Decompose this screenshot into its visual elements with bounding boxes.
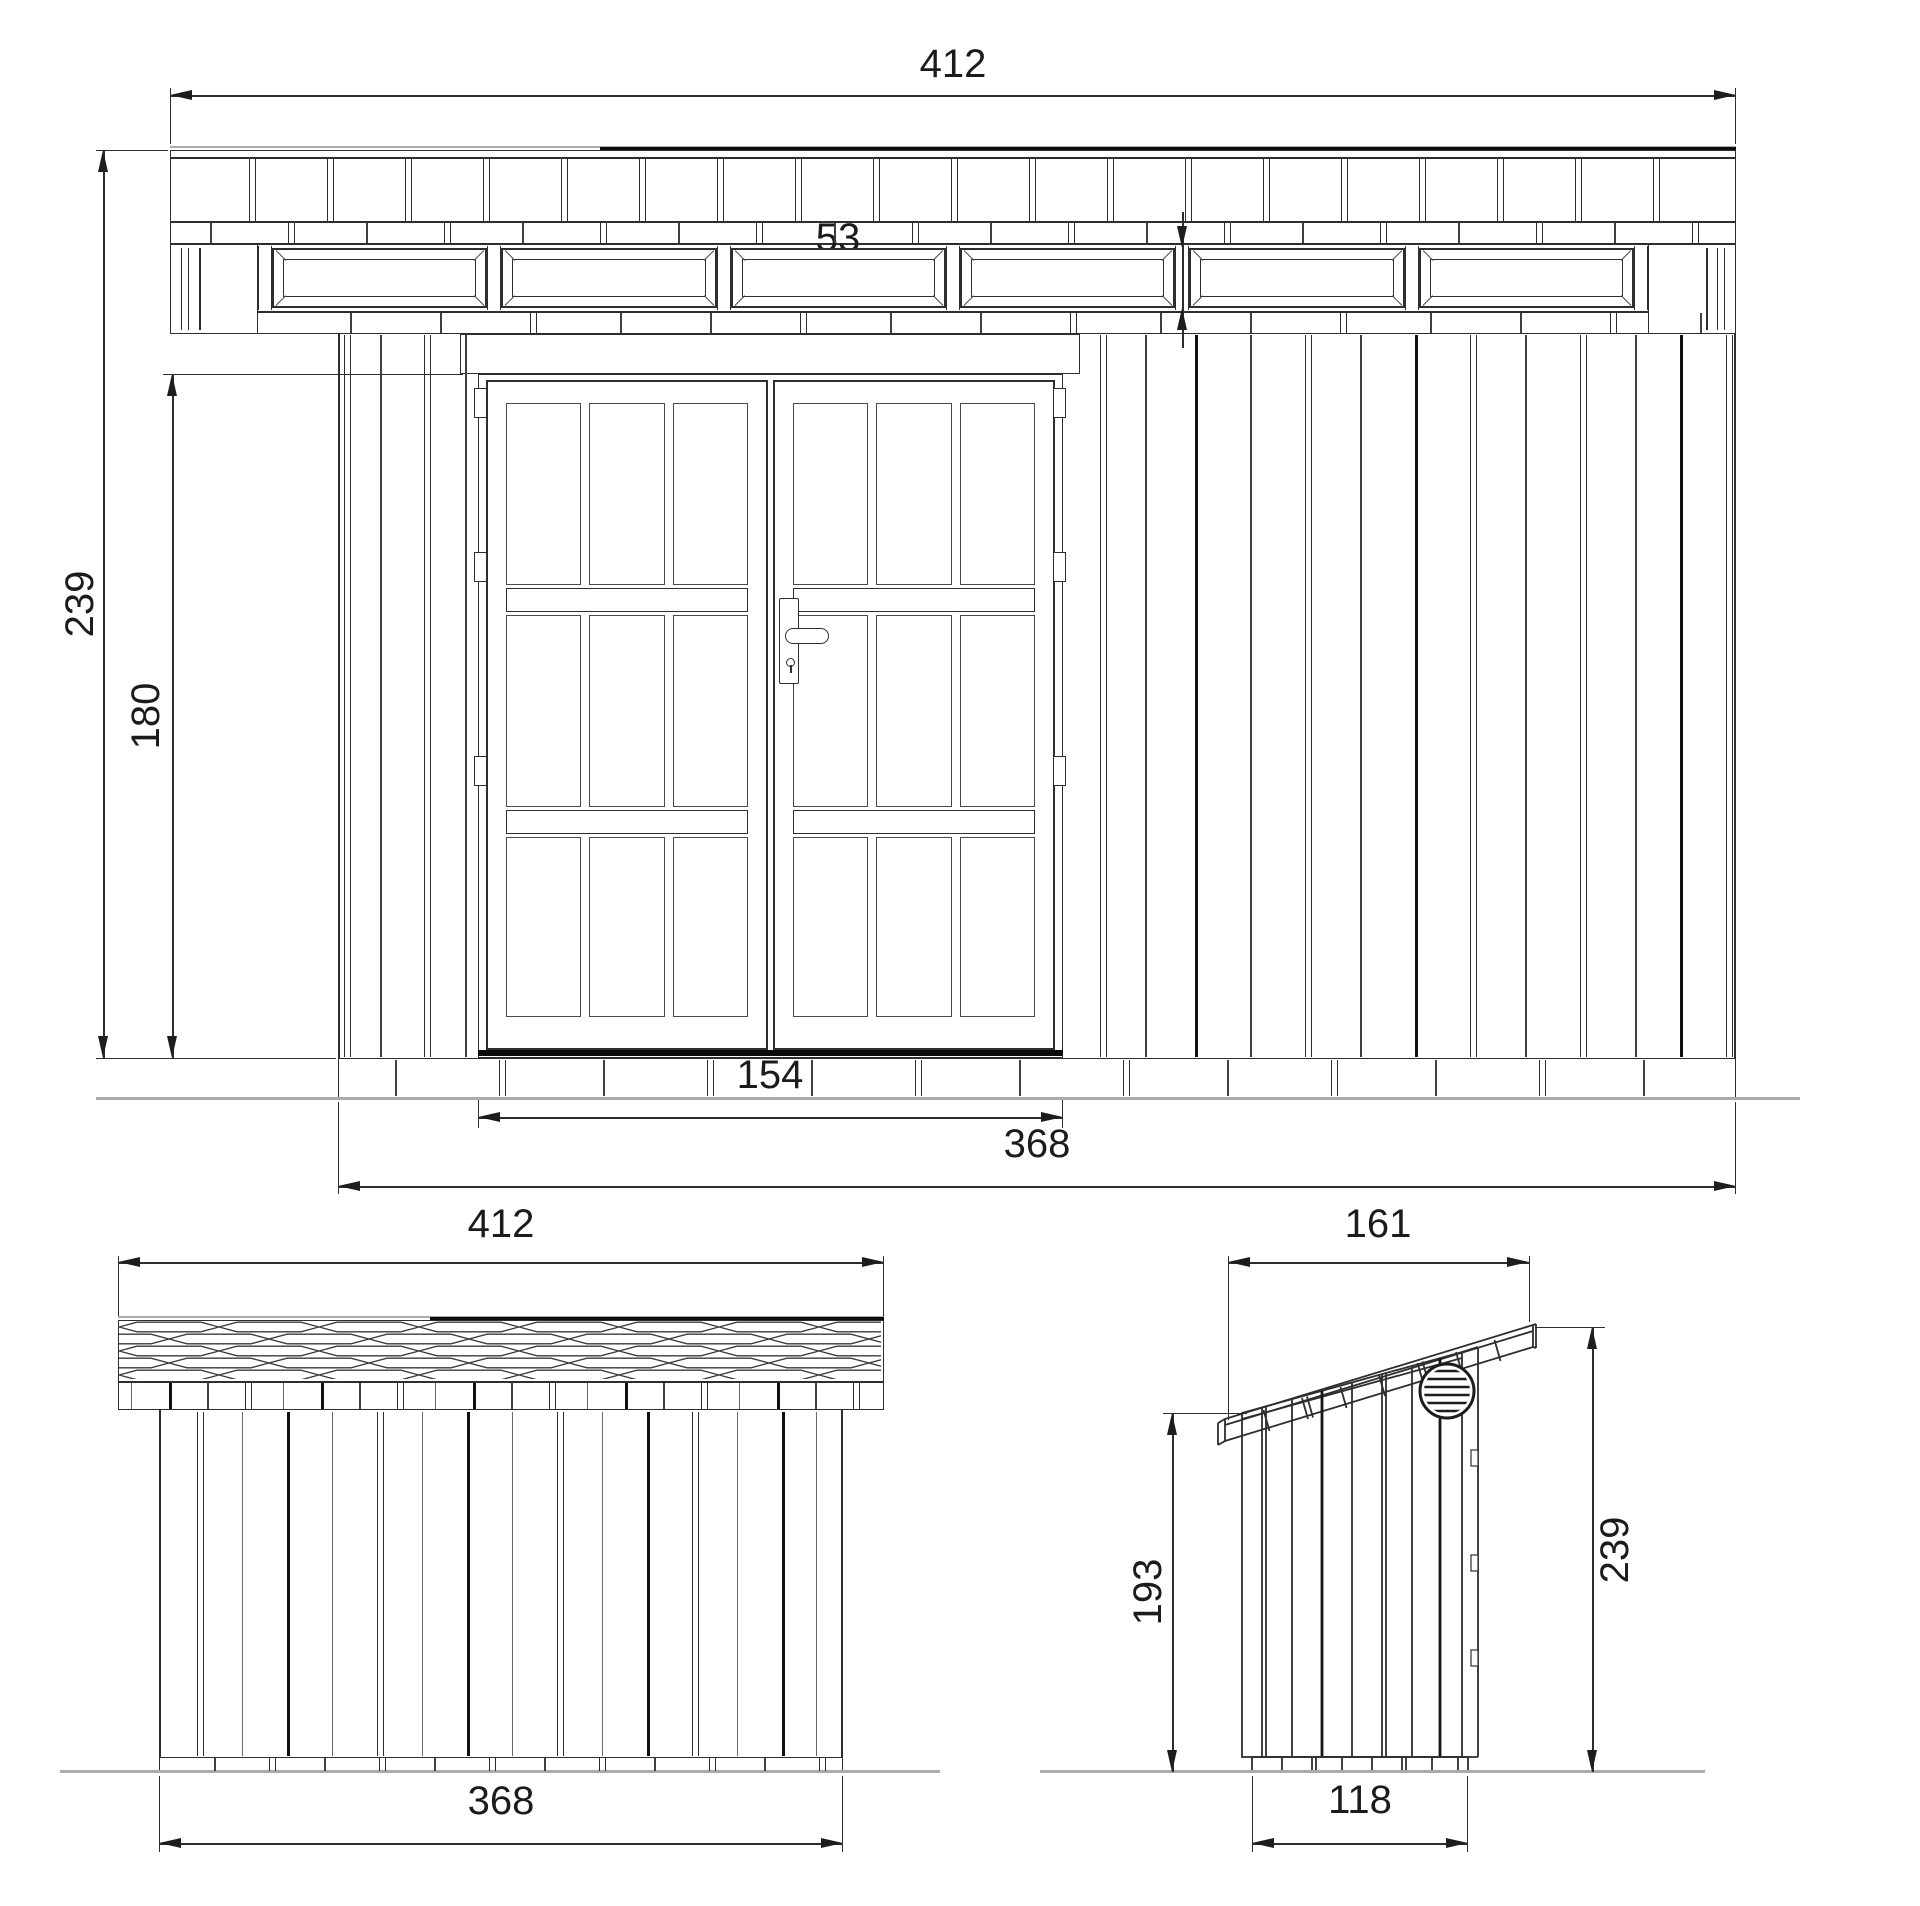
wall-plank-seam <box>1145 335 1147 1057</box>
foundation-seam <box>395 1060 397 1096</box>
roof-trim-seam <box>990 223 992 243</box>
back-wall-plank-seam <box>287 1412 290 1756</box>
lintel-seam <box>1610 313 1617 333</box>
arrow-left-icon <box>170 90 192 100</box>
back-wall-plank-seam <box>422 1412 423 1756</box>
ground-line-front <box>96 1097 1800 1100</box>
hinge <box>474 552 487 582</box>
roof-trim-seam <box>834 223 836 243</box>
roof-trim-band <box>170 222 1736 244</box>
back-wall-plank-seam <box>512 1412 513 1756</box>
foundation-seam <box>1331 1060 1338 1096</box>
ext-line <box>842 1776 843 1852</box>
back-fascia-seam <box>131 1383 132 1409</box>
back-fascia-seam <box>625 1383 628 1409</box>
transom-mullion <box>1405 246 1419 310</box>
transom-mullion <box>487 246 501 310</box>
door-panel <box>960 615 1035 807</box>
dim-front-total-height-line <box>103 150 105 1058</box>
door-rail <box>793 588 1035 612</box>
back-wall-plank-seam <box>602 1412 603 1756</box>
foundation-seam <box>1435 1060 1437 1096</box>
door-panel <box>589 403 664 585</box>
arrow-down-icon <box>98 1036 108 1058</box>
wall-plank-seam <box>1525 335 1527 1057</box>
back-fascia-seam <box>815 1383 817 1409</box>
ext-line <box>1735 1102 1736 1194</box>
transom-mullion <box>1634 246 1648 310</box>
door-panel <box>589 615 664 807</box>
arrow-up-icon <box>1167 1413 1177 1435</box>
back-wall-plank-seam <box>647 1412 650 1756</box>
ext-line <box>163 374 463 375</box>
wall-plank-seam <box>1726 335 1733 1057</box>
back-wall-plank-seam <box>467 1412 470 1756</box>
roof-slat-seam <box>873 159 880 221</box>
back-fascia-seam <box>169 1383 172 1409</box>
ground-line-back <box>60 1770 940 1773</box>
lintel-seam <box>530 313 537 333</box>
dim-door-width-label: 154 <box>737 1055 804 1095</box>
wall-plank-seam <box>1360 335 1362 1057</box>
lintel-seam <box>980 313 982 333</box>
foundation-seam <box>603 1060 605 1096</box>
arrow-right-icon <box>1714 1181 1736 1191</box>
back-foundation-seam <box>324 1758 326 1771</box>
door-panel <box>960 403 1035 585</box>
wall-plank-seam <box>1250 335 1252 1057</box>
back-fascia-seam <box>321 1383 324 1409</box>
roof-trim-seam <box>1068 223 1075 243</box>
door-panel <box>876 403 951 585</box>
roof-slat-seam <box>405 159 412 221</box>
back-wall-plank-seam <box>782 1412 785 1756</box>
wall-plank-seam <box>1195 335 1198 1057</box>
dim-front-roof-width-label: 412 <box>920 44 987 84</box>
dim-back-wall-width-line <box>159 1843 843 1845</box>
hinge <box>1053 756 1066 786</box>
ext-line <box>96 150 168 151</box>
door-panel <box>506 837 581 1017</box>
dim-back-wall-width-label: 368 <box>468 1781 535 1821</box>
lintel-seam <box>350 313 352 333</box>
dim-side-wall-depth-line <box>1252 1843 1468 1845</box>
wall-plank-seam <box>380 335 382 1057</box>
back-foundation-seam <box>214 1758 216 1771</box>
roof-slat-seam <box>327 159 334 221</box>
ext-line <box>96 1058 336 1059</box>
foundation-seam <box>499 1060 506 1096</box>
lintel-seam <box>1340 313 1347 333</box>
ext-line <box>338 1102 339 1194</box>
roof-trim-seam <box>756 223 763 243</box>
arrow-right-icon <box>862 1257 884 1267</box>
foundation-seam <box>1643 1060 1645 1096</box>
transom-window-bevel <box>1200 259 1393 297</box>
dim-front-roof-width-line <box>170 95 1736 97</box>
transom-mullion <box>717 246 731 310</box>
roof-fascia-back <box>118 1382 884 1410</box>
back-fascia-seam <box>435 1383 436 1409</box>
roof-trim-seam <box>444 223 451 243</box>
roof-cap <box>170 150 1736 158</box>
post-seam <box>199 248 201 330</box>
transom-window-bevel <box>512 259 705 297</box>
shed-technical-drawing: 412 53 14 239 180 154 <box>0 0 1920 1906</box>
dim-side-rear-height-line <box>1172 1413 1174 1772</box>
hinge <box>1053 552 1066 582</box>
roof-slat-seam <box>1419 159 1426 221</box>
transom-mullion <box>258 246 272 310</box>
dim-back-roof-width-line <box>118 1262 884 1264</box>
dim-front-total-height-label: 239 <box>60 571 100 638</box>
wall-left-edge <box>338 334 340 1058</box>
back-foundation-seam <box>544 1758 546 1771</box>
roof-slat-seam <box>1497 159 1504 221</box>
roof-slat-seam <box>483 159 490 221</box>
roof-slat-seam <box>639 159 646 221</box>
dim-side-wall-depth-label: 118 <box>1328 1780 1392 1820</box>
back-foundation-seam <box>709 1758 716 1771</box>
lintel-seam <box>1160 313 1162 333</box>
wall-plank-seam <box>1680 335 1683 1057</box>
foundation-seam <box>1123 1060 1130 1096</box>
door-panel <box>673 837 748 1017</box>
transom-window-bevel <box>283 259 476 297</box>
vent-icon <box>1418 1364 1476 1418</box>
roof-trim-seam <box>1224 223 1231 243</box>
ext-line <box>1529 1256 1530 1322</box>
roof-trim-seam <box>912 223 919 243</box>
door-panel <box>793 837 868 1017</box>
roof-slat-seam <box>1263 159 1270 221</box>
back-fascia-seam <box>473 1383 476 1409</box>
hinge <box>1053 388 1066 418</box>
arrow-left-icon <box>478 1112 500 1122</box>
back-wall-plank-seam <box>377 1412 384 1756</box>
back-foundation-seam <box>489 1758 496 1771</box>
foundation-seam <box>1227 1060 1229 1096</box>
arrow-left-icon <box>118 1257 140 1267</box>
back-wall-plank-seam <box>242 1412 243 1756</box>
back-fascia-seam <box>359 1383 361 1409</box>
transom-mullion <box>1175 246 1189 310</box>
door-panel <box>960 837 1035 1017</box>
roof-slat-seam <box>951 159 958 221</box>
roof-slat-seam <box>1575 159 1582 221</box>
roof-trim-seam <box>678 223 680 243</box>
ext-line <box>883 1256 884 1318</box>
ext-line <box>1252 1776 1253 1852</box>
back-fascia-seam <box>397 1383 404 1409</box>
arrow-down-icon <box>167 1036 177 1058</box>
back-foundation-seam <box>379 1758 386 1771</box>
back-wall-plank-seam <box>692 1412 699 1756</box>
roof-slat-seam <box>1653 159 1660 221</box>
ext-line <box>1535 1327 1605 1328</box>
back-fascia-seam <box>587 1383 588 1409</box>
back-wall-plank-seam <box>557 1412 564 1756</box>
wall-plank-seam <box>1580 335 1587 1057</box>
dim-door-width-line <box>478 1117 1063 1119</box>
arrow-right-icon <box>1446 1838 1468 1848</box>
door-panel <box>793 403 868 585</box>
wall-plank-seam <box>1470 335 1477 1057</box>
lintel-seam <box>620 313 622 333</box>
arrow-left-icon <box>159 1838 181 1848</box>
back-fascia-seam <box>549 1383 556 1409</box>
wall-plank-seam <box>1635 335 1637 1057</box>
lintel-band <box>170 312 1736 334</box>
dim-side-roof-depth-line <box>1228 1262 1529 1264</box>
door-rail <box>506 810 748 834</box>
back-wall-right-edge <box>841 1410 843 1757</box>
transom-window-bevel <box>1430 259 1623 297</box>
ext-line <box>1228 1256 1229 1420</box>
ext-line <box>118 1256 119 1318</box>
roof-trim-seam <box>1302 223 1304 243</box>
back-fascia-seam <box>853 1383 860 1409</box>
door-handle-lever <box>785 628 829 644</box>
door-rail <box>793 810 1035 834</box>
post-seam <box>181 248 189 330</box>
back-wall-plank-seam <box>332 1412 333 1756</box>
wall-plank-seam <box>1415 335 1418 1057</box>
ext-line <box>1467 1776 1468 1852</box>
transom-mullion <box>946 246 960 310</box>
arrow-right-icon <box>1714 90 1736 100</box>
ext-line <box>1735 88 1736 144</box>
roof-trim-seam <box>210 223 212 243</box>
wall-right-edge <box>1734 334 1736 1058</box>
roof-slat-seam <box>717 159 724 221</box>
foundation-front <box>338 1058 1736 1098</box>
dim-side-total-height-line <box>1592 1327 1594 1772</box>
back-fascia-seam <box>777 1383 780 1409</box>
hinge <box>474 388 487 418</box>
arrow-up-icon <box>1587 1327 1597 1349</box>
dim-front-wall-width-label: 368 <box>1004 1124 1071 1164</box>
roof-slat-seam <box>795 159 802 221</box>
ext-line <box>1163 1413 1247 1414</box>
arrow-left-icon <box>1228 1257 1250 1267</box>
arrow-left-icon <box>1252 1838 1274 1848</box>
roof-slat-seam <box>1185 159 1192 221</box>
roof-trim-seam <box>366 223 368 243</box>
wall-plank-seam <box>344 335 351 1057</box>
arrow-right-icon <box>821 1838 843 1848</box>
hinge <box>474 756 487 786</box>
back-fascia-seam <box>283 1383 284 1409</box>
back-wall-plank-seam <box>816 1412 817 1756</box>
foundation-seam <box>707 1060 714 1096</box>
transom-window-bevel <box>742 259 935 297</box>
door-rail <box>506 588 748 612</box>
foundation-seam <box>1539 1060 1546 1096</box>
roof-trim-seam <box>1614 223 1616 243</box>
foundation-seam <box>915 1060 922 1096</box>
roof-slat-seam <box>1029 159 1036 221</box>
wall-plank-seam <box>424 335 431 1057</box>
arrow-right-icon <box>1041 1112 1063 1122</box>
roof-trim-seam <box>1536 223 1543 243</box>
lintel-seam <box>710 313 712 333</box>
roof-slat-seam <box>1341 159 1348 221</box>
arrow-up-icon <box>1177 308 1187 330</box>
post-seam <box>1717 248 1725 330</box>
wall-plank-seam <box>1100 335 1107 1057</box>
back-foundation-seam <box>599 1758 606 1771</box>
back-fascia-seam <box>739 1383 740 1409</box>
ext-line <box>478 1100 479 1128</box>
door-panel <box>506 403 581 585</box>
back-fascia-seam <box>245 1383 252 1409</box>
roof-slat-seam <box>561 159 568 221</box>
arrow-down-icon <box>1587 1750 1597 1772</box>
roof-trim-seam <box>600 223 607 243</box>
lintel-seam <box>1430 313 1432 333</box>
dim-door-height-label: 180 <box>126 683 166 750</box>
roof-trim-seam <box>1380 223 1387 243</box>
dim-side-total-height-label: 239 <box>1595 1517 1635 1584</box>
back-foundation-seam <box>764 1758 766 1771</box>
back-fascia-seam <box>701 1383 708 1409</box>
roof-trim-seam <box>1458 223 1460 243</box>
arrow-down-icon <box>1167 1750 1177 1772</box>
dim-door-height-line <box>172 374 174 1058</box>
arrow-up-icon <box>98 150 108 172</box>
back-foundation-seam <box>654 1758 656 1771</box>
lintel-seam <box>1070 313 1077 333</box>
back-wall-plank-seam <box>197 1412 204 1756</box>
back-fascia-seam <box>511 1383 513 1409</box>
door-keyhole-slot <box>790 665 793 673</box>
lintel-seam <box>1250 313 1252 333</box>
dim-front-wall-width-line <box>338 1186 1736 1188</box>
back-foundation-seam <box>819 1758 826 1771</box>
roof-trim-seam <box>1692 223 1699 243</box>
arrow-left-icon <box>338 1181 360 1191</box>
lintel-seam <box>440 313 442 333</box>
dim-back-roof-width-label: 412 <box>468 1204 535 1244</box>
door-panel <box>673 403 748 585</box>
roof-shingles <box>118 1320 884 1382</box>
ground-line-side <box>1040 1770 1705 1773</box>
dim-side-rear-height-label: 193 <box>1128 1559 1168 1626</box>
transom-window-bevel <box>971 259 1164 297</box>
arrow-up-icon <box>167 374 177 396</box>
arrow-down-icon <box>1177 226 1187 248</box>
back-foundation-seam <box>269 1758 276 1771</box>
door-panel <box>589 837 664 1017</box>
back-wall-plank-seam <box>737 1412 738 1756</box>
dim-side-roof-depth-label: 161 <box>1345 1204 1412 1244</box>
door-panel <box>673 615 748 807</box>
roof-trim-seam <box>288 223 295 243</box>
arrow-right-icon <box>1507 1257 1529 1267</box>
door-header <box>460 334 1080 374</box>
door-panel <box>506 615 581 807</box>
wall-plank-seam <box>465 335 467 1057</box>
side-roof <box>1225 1325 1533 1441</box>
roof-trim-seam <box>1146 223 1148 243</box>
shingle-pattern <box>119 1321 881 1379</box>
foundation-seam <box>1019 1060 1021 1096</box>
back-wall-left-edge <box>159 1410 161 1757</box>
ext-line <box>159 1776 160 1852</box>
door-panel <box>876 615 951 807</box>
roof-slat-seam <box>1107 159 1114 221</box>
post-seam <box>1706 248 1708 330</box>
side-view-drawing <box>1140 1300 1660 1800</box>
back-fascia-seam <box>207 1383 209 1409</box>
lintel-seam <box>800 313 807 333</box>
foundation-seam <box>811 1060 813 1096</box>
back-fascia-seam <box>663 1383 665 1409</box>
roof-slat-seam <box>249 159 256 221</box>
ext-line <box>170 88 171 144</box>
roof-trim-seam <box>522 223 524 243</box>
back-foundation-seam <box>434 1758 436 1771</box>
lintel-seam <box>890 313 892 333</box>
door-panel <box>876 837 951 1017</box>
wall-plank-seam <box>1305 335 1312 1057</box>
lintel-seam <box>1520 313 1522 333</box>
lintel-seam <box>1700 313 1702 333</box>
